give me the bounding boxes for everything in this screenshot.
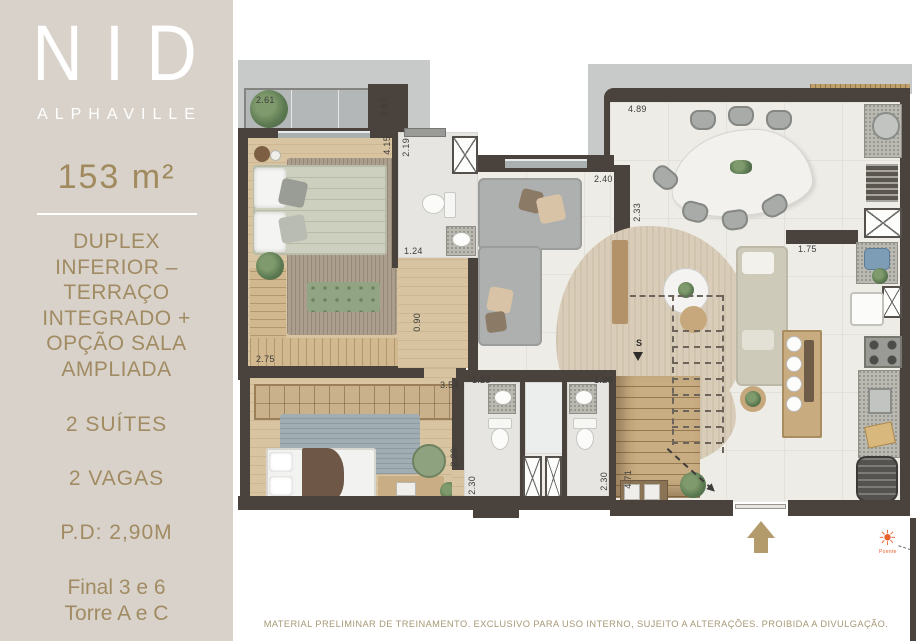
- entry-door: [735, 504, 786, 509]
- parking-label: 2 VAGAS: [0, 467, 233, 491]
- bed-pillow: [269, 476, 293, 496]
- sink-icon: [494, 390, 512, 405]
- entry-arrow-icon: [747, 521, 775, 538]
- void-dashed-line: [672, 295, 674, 445]
- entry-arrow-icon: [754, 538, 768, 553]
- void-dashed-line: [722, 295, 724, 453]
- divider: [37, 213, 197, 215]
- pouf: [680, 306, 707, 333]
- suite1-side-table: [270, 150, 281, 161]
- bed-throw: [302, 448, 344, 502]
- sofa-pillow: [742, 330, 774, 350]
- shaft-box: [523, 456, 542, 500]
- brand-logo: NID: [0, 14, 233, 92]
- unit-info: Final 3 e 6 Torre A e C: [0, 575, 233, 628]
- stove-icon: [864, 336, 902, 368]
- unit-description: DUPLEX INFERIOR – TERRAÇO INTEGRADO + OP…: [28, 229, 206, 383]
- island-plate: [786, 356, 802, 372]
- kitchen-pass-stub: [786, 230, 858, 244]
- sidebar: NID ALPHAVILLE 153 m² DUPLEX INFERIOR – …: [0, 0, 233, 641]
- sun-icon: ☀: [878, 528, 897, 549]
- dining-centerpiece: [730, 160, 752, 174]
- sofa-pillow: [485, 311, 508, 334]
- bathroom1-door-lintel: [404, 128, 446, 137]
- suite1-door-gap: [424, 368, 456, 378]
- kitchen-plant: [872, 268, 888, 284]
- stair-up-marker: S: [636, 338, 642, 348]
- terrace-deck-bottom: [250, 338, 398, 368]
- island-plate: [786, 396, 802, 412]
- shaft-box: [882, 286, 902, 318]
- sofa-pillow: [486, 286, 514, 314]
- sofa-pillow: [536, 194, 567, 225]
- page: NID ALPHAVILLE 153 m² DUPLEX INFERIOR – …: [0, 0, 916, 641]
- toilet-icon: [444, 192, 456, 218]
- bottom-wall-right2: [788, 500, 910, 516]
- compass-label: Poente: [879, 549, 897, 555]
- void-dashed-line: [672, 394, 722, 396]
- water-filter: [864, 248, 890, 270]
- frame: [624, 484, 640, 500]
- desk-items: [396, 482, 416, 496]
- shaft-box: [864, 208, 902, 238]
- island-plate: [786, 336, 802, 352]
- frame: [644, 484, 660, 500]
- sink-icon: [452, 232, 471, 247]
- corridor-floor: [398, 258, 468, 368]
- island-tray: [804, 340, 814, 402]
- void-dashed-line: [630, 295, 722, 297]
- side-table-plant: [745, 391, 761, 407]
- suite1-side-table: [254, 146, 270, 162]
- dining-chair: [766, 110, 792, 130]
- shaft-box: [545, 456, 562, 500]
- ceiling-height-label: P.D: 2,90M: [0, 521, 233, 545]
- sink-icon: [575, 390, 593, 405]
- island-plate: [786, 376, 802, 392]
- prep-sink: [868, 388, 892, 414]
- bed-pillow: [278, 214, 308, 244]
- balcony-plant: [250, 90, 288, 128]
- disclaimer: MATERIAL PRELIMINAR DE TREINAMENTO. EXCL…: [236, 619, 916, 629]
- living-window: [505, 159, 587, 168]
- dining-chair: [728, 106, 754, 126]
- kitchen-sink-icon: [872, 112, 900, 140]
- void-dashed-line: [672, 362, 722, 364]
- bottom-wall-left: [238, 496, 616, 510]
- laundry-basin: [850, 292, 884, 326]
- unit-area: 153 m²: [0, 158, 233, 197]
- kitchen-vent: [866, 164, 898, 202]
- shaft-box: [452, 136, 478, 174]
- brand-subtitle: ALPHAVILLE: [0, 106, 233, 124]
- stair-plant: [680, 472, 706, 498]
- void-dashed-line: [672, 426, 722, 428]
- bottom-wall-mat: [473, 504, 519, 518]
- bbq-grill: [856, 456, 898, 502]
- suite2-door-gap: [452, 470, 464, 496]
- bed-pillow: [278, 178, 309, 209]
- bath-row-top-wall: [456, 370, 616, 382]
- suites-label: 2 SUÍTES: [0, 413, 233, 437]
- stair-marker-arrow: [633, 352, 643, 361]
- void-dashed-line: [672, 330, 722, 332]
- void-dashed-line: [672, 410, 722, 412]
- dining-chair: [690, 110, 716, 130]
- desk-chair: [412, 444, 446, 478]
- bed-pillow: [269, 452, 293, 472]
- void-dashed-line: [672, 442, 722, 444]
- void-dashed-line: [672, 346, 722, 348]
- shower-box: [525, 382, 565, 454]
- unit-final: Final 3 e 6: [0, 575, 233, 601]
- sofa-pillow: [742, 252, 774, 274]
- void-dashed-line: [672, 378, 722, 380]
- tv-sideboard: [612, 240, 628, 324]
- floor-plan: S: [236, 0, 916, 641]
- suite1-plant: [256, 252, 284, 280]
- unit-tower: Torre A e C: [0, 601, 233, 627]
- bottom-wall-right: [610, 500, 733, 516]
- bed-bench: [307, 282, 380, 312]
